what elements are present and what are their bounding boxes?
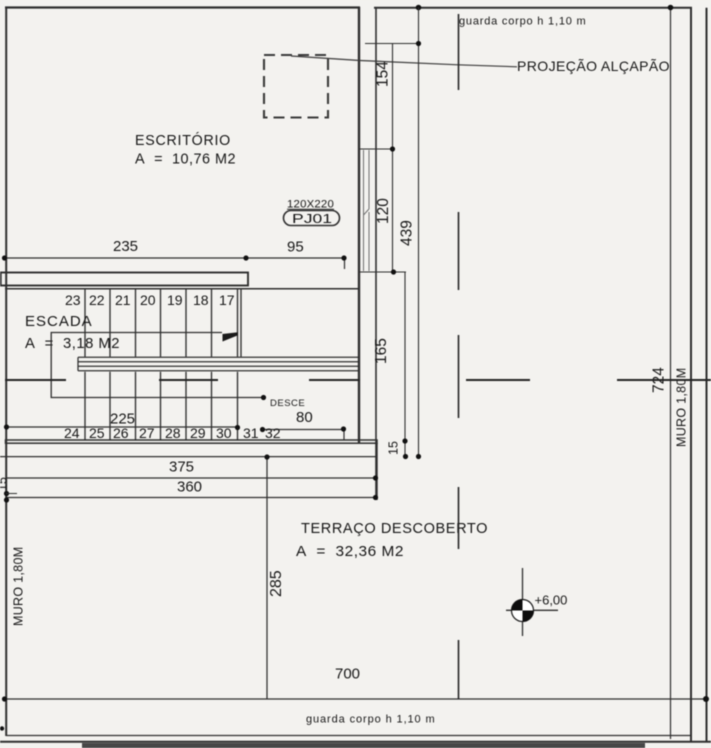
svg-text:TERRAÇO DESCOBERTO: TERRAÇO DESCOBERTO	[301, 520, 488, 537]
svg-text:DESCE: DESCE	[270, 398, 305, 409]
svg-text:15: 15	[0, 477, 10, 491]
svg-text:A = 32,36 M2: A = 32,36 M2	[296, 543, 404, 560]
svg-text:25: 25	[89, 425, 105, 441]
svg-text:375: 375	[169, 459, 194, 476]
svg-text:95: 95	[287, 239, 304, 256]
svg-text:21: 21	[115, 292, 131, 308]
svg-text:285: 285	[268, 570, 285, 597]
svg-text:26: 26	[113, 425, 129, 441]
svg-text:31: 31	[243, 425, 259, 441]
svg-text:17: 17	[219, 292, 235, 308]
svg-text:29: 29	[190, 425, 206, 441]
svg-text:ESCRITÓRIO: ESCRITÓRIO	[135, 132, 231, 149]
svg-text:A = 10,76 M2: A = 10,76 M2	[135, 151, 236, 168]
svg-text:235: 235	[113, 238, 138, 255]
svg-text:165: 165	[373, 338, 390, 364]
svg-text:18: 18	[193, 292, 209, 308]
svg-text:154: 154	[375, 61, 392, 87]
svg-text:120: 120	[375, 198, 392, 224]
svg-text:700: 700	[335, 666, 360, 683]
svg-text:20: 20	[140, 292, 156, 308]
svg-text:22: 22	[89, 292, 105, 308]
svg-text:PJ01: PJ01	[292, 211, 332, 226]
svg-text:ESCADA: ESCADA	[25, 313, 93, 330]
svg-text:80: 80	[296, 409, 313, 426]
svg-text:23: 23	[65, 292, 81, 308]
svg-text:30: 30	[216, 425, 232, 441]
svg-text:A = 3,18 M2: A = 3,18 M2	[25, 335, 120, 352]
svg-text:guarda corpo h 1,10 m: guarda corpo h 1,10 m	[306, 714, 436, 726]
svg-text:32: 32	[265, 425, 281, 441]
svg-text:PROJEÇÃO ALÇAPÃO: PROJEÇÃO ALÇAPÃO	[517, 58, 670, 74]
svg-text:+6,00: +6,00	[535, 593, 568, 608]
svg-text:27: 27	[139, 425, 155, 441]
svg-text:120X220: 120X220	[287, 199, 334, 211]
svg-text:MURO 1,80M: MURO 1,80M	[12, 547, 26, 626]
svg-text:28: 28	[165, 425, 181, 441]
svg-text:24: 24	[64, 425, 80, 441]
svg-text:15: 15	[387, 441, 401, 455]
svg-text:guarda corpo h 1,10 m: guarda corpo h 1,10 m	[459, 16, 586, 28]
svg-text:19: 19	[167, 292, 183, 308]
svg-text:439: 439	[399, 220, 416, 246]
svg-text:360: 360	[177, 479, 202, 496]
